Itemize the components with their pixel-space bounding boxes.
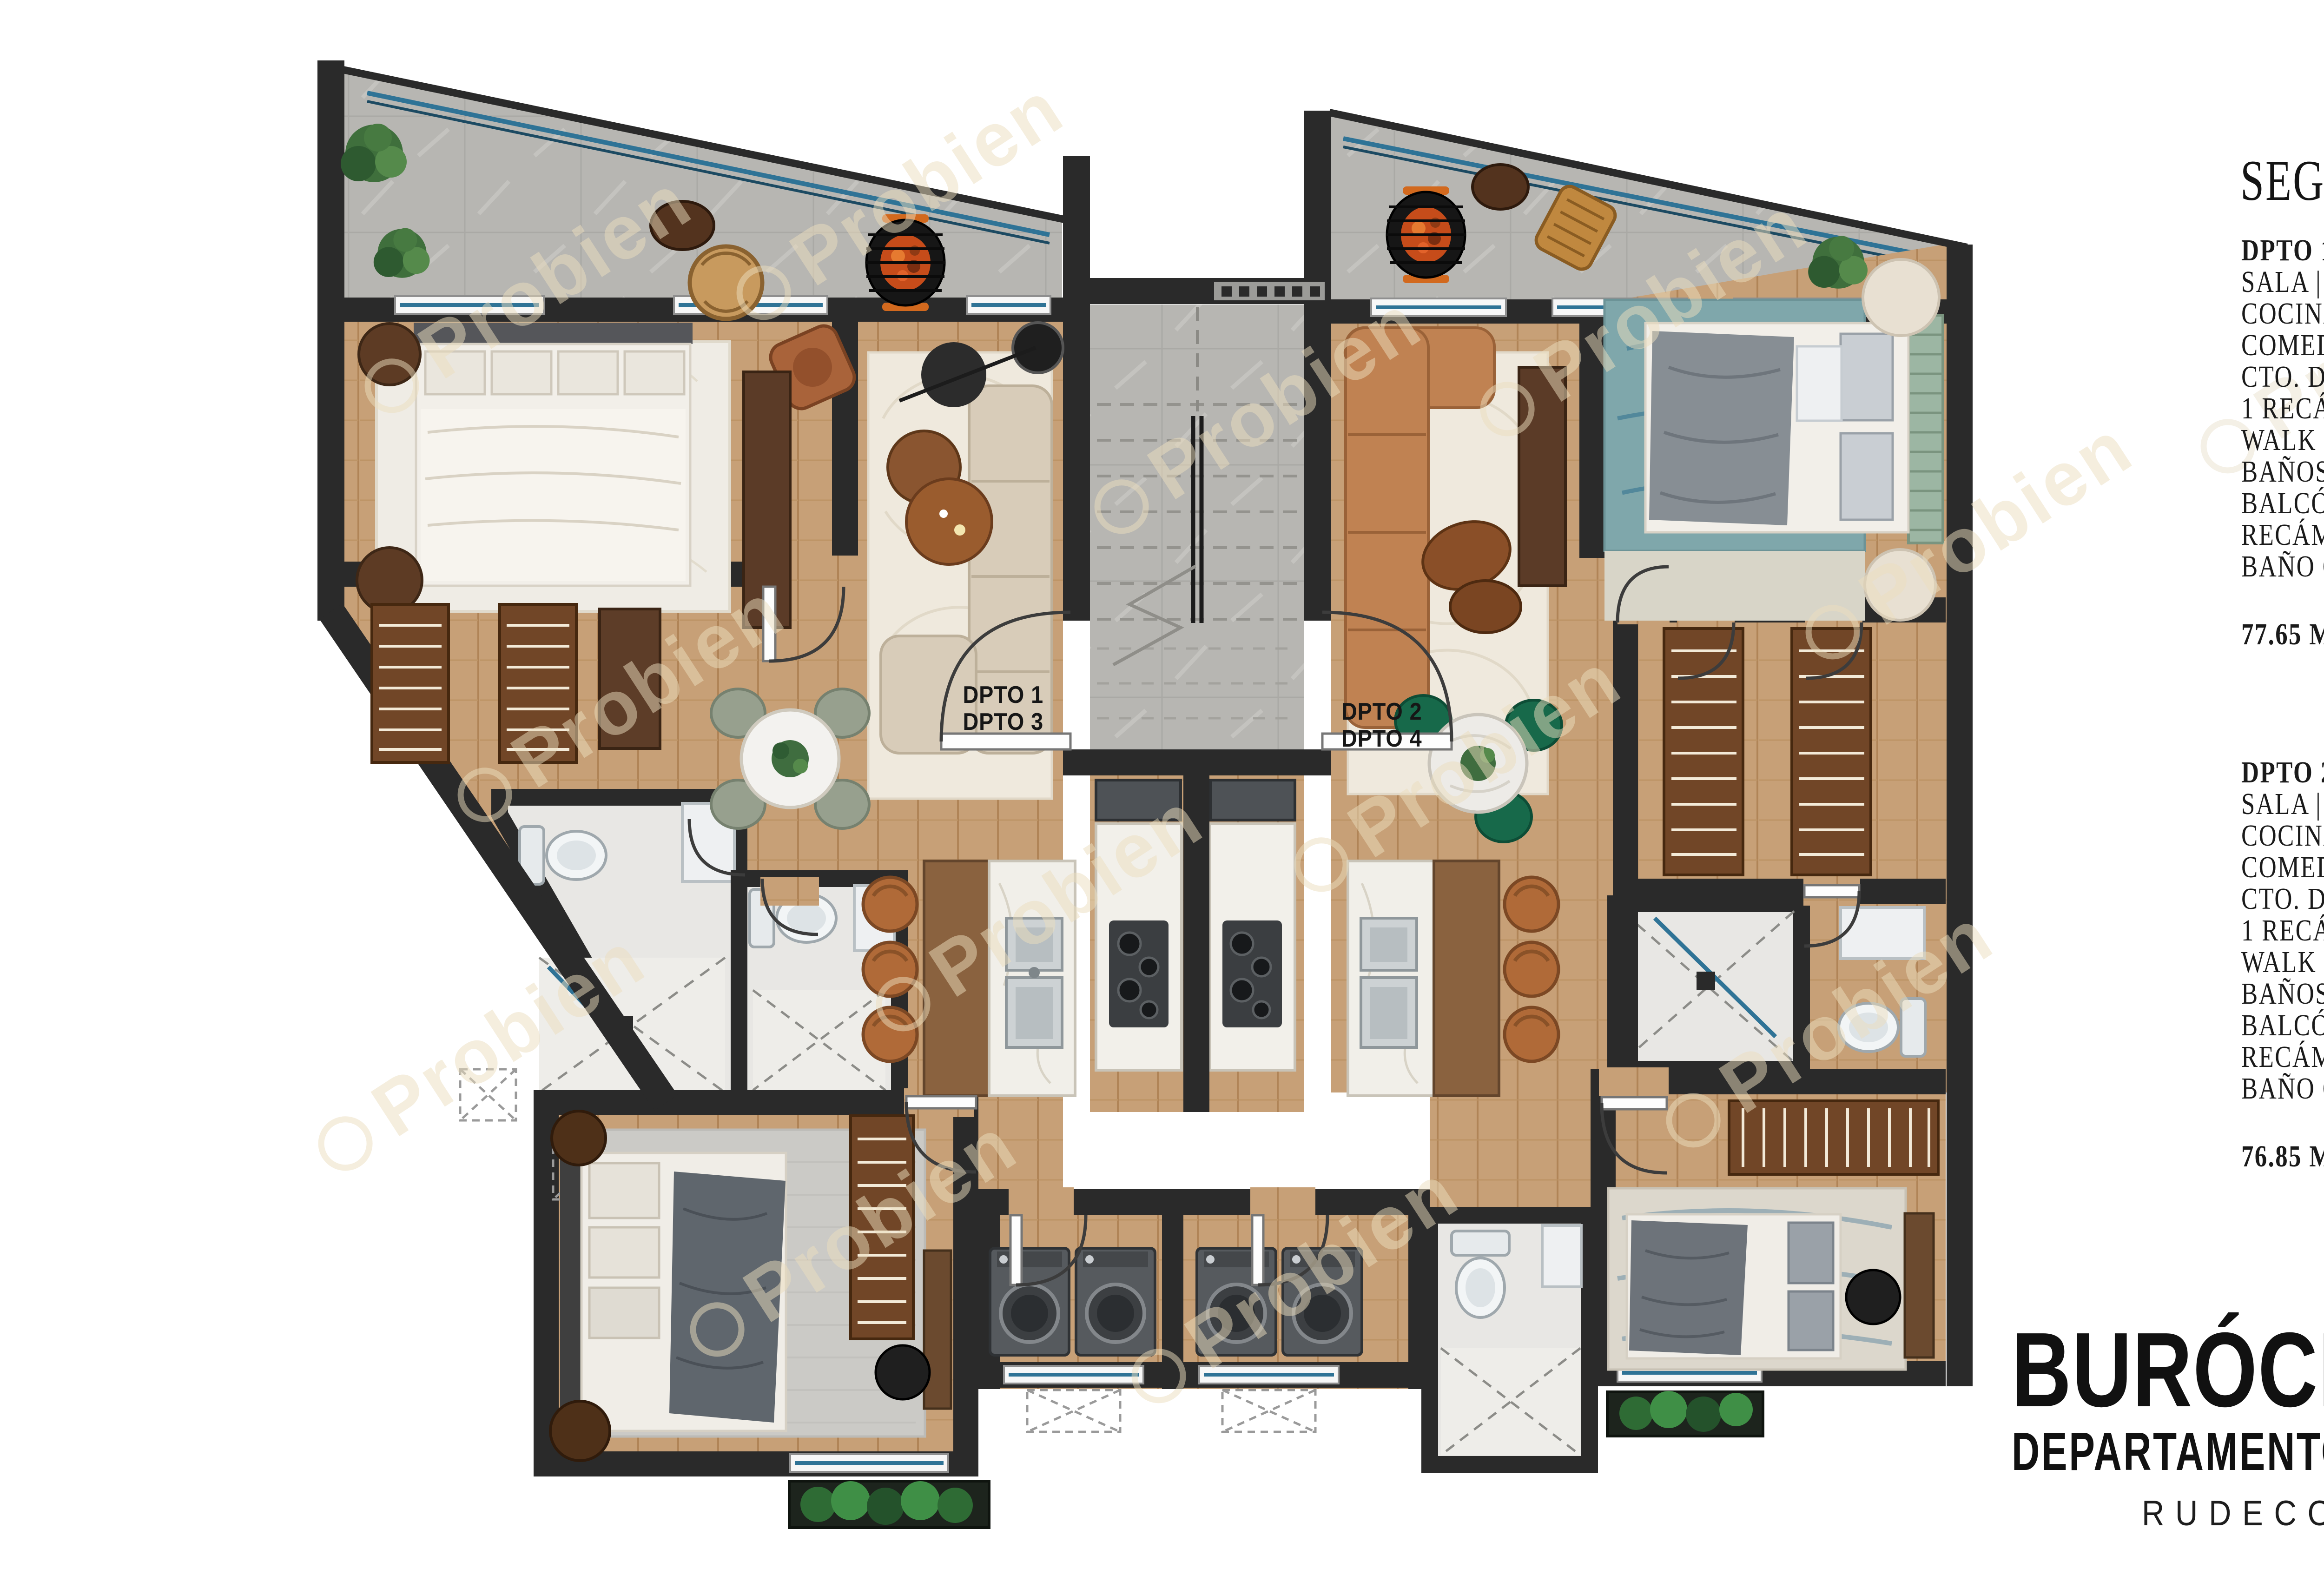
svg-text:DPTO 3: DPTO 3 (963, 708, 1043, 735)
apartment-info-2: DPTO 2 Y 4 SALA | BALCÓN COCINA | BARRA … (2241, 757, 2324, 1172)
feature-item: WALK IN CLOSET (2241, 947, 2324, 978)
feature-item: BAÑOS PRINCIPAL (2241, 456, 2324, 488)
bathroom-secondary-right (1430, 1215, 1590, 1464)
feature-item: COCINA | BARRA (2241, 820, 2324, 852)
feature-item: 1 RECÁMARA PRINCIPAL (2241, 393, 2324, 424)
vent-grille (1214, 282, 1325, 300)
svg-text:DPTO 1: DPTO 1 (963, 682, 1043, 708)
kitchen-right (1348, 861, 1558, 1096)
feature-item: BAÑOS PRINCIPAL (2241, 978, 2324, 1010)
svg-text:DPTO 2: DPTO 2 (1341, 698, 1422, 725)
feature-item: BAÑO COMPLETO (2241, 1073, 2324, 1105)
feature-item: RECÁMARA SECUNDARIA (2241, 1041, 2324, 1073)
balcony-planter-right (1607, 1391, 1763, 1436)
feature-item: BALCÓN (2241, 1010, 2324, 1041)
feature-item: SALA | BALCÓN (2241, 788, 2324, 820)
svg-text:DPTO 4: DPTO 4 (1341, 725, 1422, 752)
unit-label-right: DPTO 2 DPTO 4 (1341, 698, 1422, 752)
floorplan-sheet: DPTO 1 DPTO 3 DPTO 2 DPTO 4 Probien Prob… (0, 0, 2324, 1569)
apartment-header: DPTO 1 Y 3 (2241, 235, 2324, 266)
apartment-info-1: DPTO 1 Y 3 SALA | BALCÓN COCINA | BARRA … (2241, 235, 2324, 650)
unit-label-left: DPTO 1 DPTO 3 (963, 682, 1043, 735)
feature-item: COMEDOR (2241, 852, 2324, 883)
feature-item: CTO. DE SERVICIO (2241, 883, 2324, 915)
feature-item: BALCÓN (2241, 488, 2324, 519)
balcony-planter-left (789, 1481, 989, 1528)
builder-name: RUDECO CONSTRUCTORA (2142, 1493, 2324, 1534)
project-subtitle: DEPARTAMENTOS (2012, 1423, 2324, 1479)
feature-item: COMEDOR (2241, 330, 2324, 361)
project-name: BURÓCRATAS II (2012, 1321, 2324, 1419)
feature-item: RECÁMARA SECUNDARIA (2241, 519, 2324, 551)
apartment-area: 77.65 METROS CUADRADOS (2241, 619, 2324, 650)
apartment-header: DPTO 2 Y 4 (2241, 757, 2324, 788)
hanging-chair-icon (690, 246, 762, 319)
tray-table-icon (1472, 165, 1528, 209)
feature-item: 1 RECÁMARA PRINCIPAL (2241, 915, 2324, 947)
feature-item: CTO. DE SERVICIO (2241, 361, 2324, 393)
feature-item: WALK IN CLOSET (2241, 424, 2324, 456)
feature-item: SALA | BALCÓN (2241, 266, 2324, 298)
floorplan-drawing: DPTO 1 DPTO 3 DPTO 2 DPTO 4 Probien Prob… (0, 0, 2324, 1569)
project-brand: BURÓCRATAS II DEPARTAMENTOS (2012, 1321, 2324, 1479)
apartment-area: 76.85 METROS CUADRADOS (2241, 1141, 2324, 1172)
feature-item: BAÑO COMPLETO (2241, 551, 2324, 583)
page-title: SEGUNDO Y TERCER NIVEL (2240, 148, 2324, 214)
feature-item: COCINA | BARRA (2241, 298, 2324, 330)
bedroom-secondary-right (1608, 1188, 1934, 1370)
